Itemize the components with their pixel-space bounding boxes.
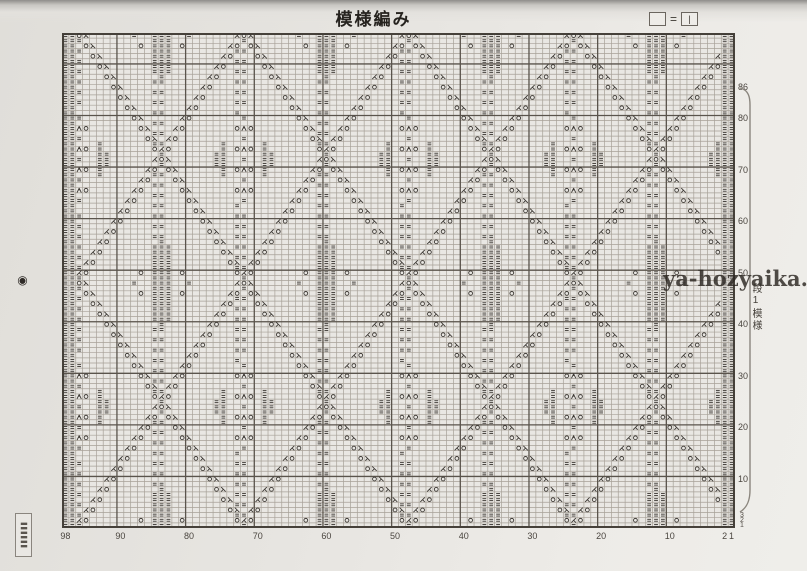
row-number: 40 <box>738 320 748 329</box>
knitting-chart-grid <box>62 33 735 528</box>
stitch-number: 80 <box>184 532 194 541</box>
stitch-number: 98 <box>60 532 70 541</box>
blank-square-icon <box>649 12 666 26</box>
row-number: 60 <box>738 217 748 226</box>
row-number: 20 <box>738 423 748 432</box>
stitch-number: 50 <box>390 532 400 541</box>
legend-equals: = <box>670 12 677 26</box>
row-number: 80 <box>738 114 748 123</box>
stitch-number: 60 <box>321 532 331 541</box>
stitch-number: 30 <box>527 532 537 541</box>
corner-stamp: 〓〓〓 <box>15 513 32 557</box>
stitch-number: 40 <box>459 532 469 541</box>
row-number-small: 1 <box>740 522 744 529</box>
stitch-number: 20 <box>596 532 606 541</box>
stitch-number: 10 <box>665 532 675 541</box>
corner-stamp-text: 〓〓〓 <box>20 522 28 549</box>
row-number: 10 <box>738 475 748 484</box>
watermark: ya-hozyaika.com <box>663 266 807 291</box>
stitch-number: 2 <box>722 532 727 541</box>
stitch-number: 90 <box>115 532 125 541</box>
circled-stamp-icon: ◉ <box>16 274 29 287</box>
stitch-key-legend: = | <box>649 11 698 27</box>
stitch-number: 70 <box>253 532 263 541</box>
scanned-knitting-pattern-page: { "page": { "title": "模様編み", "watermark"… <box>0 0 807 571</box>
row-number: 86 <box>738 83 748 92</box>
knit-stitch-icon: | <box>681 12 698 26</box>
stitch-number: 1 <box>729 532 734 541</box>
page-title: 模様編み <box>0 5 747 30</box>
knitting-chart <box>62 33 735 528</box>
row-number: 30 <box>738 372 748 381</box>
row-number: 70 <box>738 166 748 175</box>
